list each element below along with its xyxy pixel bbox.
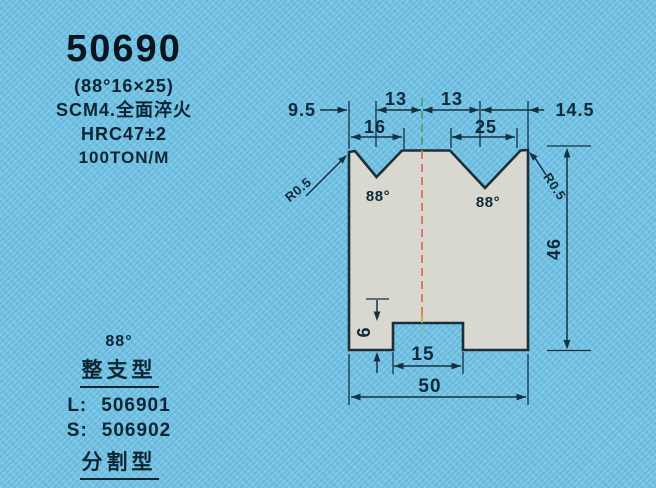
die-body-profile xyxy=(349,150,528,350)
order-prefix: L: xyxy=(67,395,87,417)
dim-label-pitch-left: 13 xyxy=(385,89,407,109)
part-number: 50690 xyxy=(0,30,248,68)
angle-label-left: 88° xyxy=(366,188,390,205)
order-item-solid-s: S: 506902 xyxy=(0,420,238,442)
angle-label-right: 88° xyxy=(476,194,500,211)
dim-label-v-width-left: 16 xyxy=(364,117,386,137)
order-code: 506901 xyxy=(101,395,170,417)
dim-label-v-width-right: 25 xyxy=(475,117,497,137)
dim-label-slot-width: 15 xyxy=(411,344,434,365)
dim-label-body-width: 50 xyxy=(418,376,441,397)
order-angle: 88° xyxy=(0,333,238,351)
radius-label-right: R0.5 xyxy=(540,170,569,203)
dim-label-slot-depth: 6 xyxy=(354,326,374,337)
dim-label-left-offset: 9.5 xyxy=(288,100,316,120)
dim-label-pitch-right: 13 xyxy=(441,89,463,109)
tonnage-spec: 100TON/M xyxy=(0,149,248,166)
split-type-label: 分割型 xyxy=(80,446,159,480)
solid-type-label: 整支型 xyxy=(80,354,159,388)
radius-label-left: R0.5 xyxy=(282,174,314,204)
dim-label-body-height: 46 xyxy=(544,238,564,260)
spec-block: 50690 (88°16×25) SCM4.全面淬火 HRC47±2 100TO… xyxy=(0,30,248,172)
order-item-solid-l: L: 506901 xyxy=(0,395,238,417)
order-code: 506902 xyxy=(102,420,171,442)
order-block: 88° 整支型 L: 506901 S: 506902 分割型 L: 50680… xyxy=(0,333,238,488)
dim-label-right-offset: 14.5 xyxy=(555,100,594,120)
hardness-spec: HRC47±2 xyxy=(0,125,248,143)
catalog-page: 9.5 13 13 14.5 16 25 46 6 15 50 88° 88° … xyxy=(0,0,656,488)
material-spec: SCM4.全面淬火 xyxy=(0,101,248,119)
order-prefix: S: xyxy=(67,420,88,442)
angle-size-spec: (88°16×25) xyxy=(0,77,248,95)
